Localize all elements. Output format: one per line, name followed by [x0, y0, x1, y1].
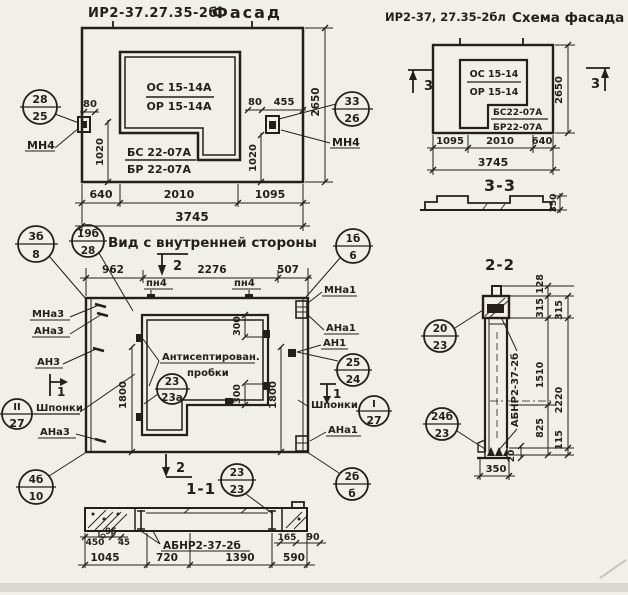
hatch-dot	[298, 518, 301, 521]
inner-dim-1800-left: 1800	[118, 381, 129, 409]
label-an3: АН3	[37, 357, 60, 368]
facade-dim-80-left: 80	[83, 99, 97, 110]
schema-title-code: ИР2-37, 27.35-2бл	[385, 10, 506, 24]
label-mna3: МНа3	[32, 309, 64, 320]
inner-dim-507: 507	[277, 264, 299, 276]
callout-II-27-num: II	[13, 402, 20, 413]
facade-anchor-plate-right-core	[269, 121, 276, 129]
dim-1390: 1390	[225, 552, 254, 564]
section3-left-arrow	[409, 70, 417, 80]
callout-23-23a-leader	[144, 394, 158, 404]
callout-19b-28-den: 28	[81, 245, 96, 257]
facade-dim-1020-right: 1020	[248, 144, 259, 172]
drawing-sheet: ИР2-37.27.35-2б Фасад ОС 15-14А ОР 15-14…	[0, 0, 628, 595]
facade-dim-2650: 2650	[310, 87, 322, 116]
schema-dim-2650: 2650	[554, 76, 565, 104]
inner-vert-dim-lines	[132, 315, 281, 452]
section-2-2: 2-2 АБНР2-37-2б 20 23 24б 23 128 315 315…	[421, 256, 574, 480]
facade-callout-left-num: 28	[32, 93, 47, 106]
facade-callout-right-num: 33	[344, 95, 359, 108]
dim-1510: 1510	[535, 361, 546, 388]
callout-19b-28-leader	[99, 253, 133, 311]
callout-I-27-den: 27	[366, 414, 381, 427]
callout-2b-b-den: б	[348, 488, 355, 500]
dim-450: 450	[86, 538, 105, 548]
callout-1b-6-num: 1б	[346, 233, 361, 245]
callout-II-27-den: 27	[9, 417, 24, 430]
section-3-3: 3-3 350	[420, 176, 567, 213]
section-1-1: АБНР2-37-2б 450 95 45 165 90 1045 720 13…	[78, 502, 326, 568]
label-an1: АН1	[323, 338, 346, 349]
section-3-3-dim-350: 350	[549, 194, 559, 213]
schema-dim-3745: 3745	[478, 156, 509, 169]
schema-dim-2010: 2010	[486, 136, 514, 147]
section1-right-label: 1	[333, 387, 341, 401]
section1-left-label: 1	[57, 385, 65, 399]
section-3-3-profile	[425, 196, 551, 210]
section-1-1-title: 1-1	[186, 480, 216, 498]
dim-1045: 1045	[90, 552, 119, 564]
plug-mark	[263, 330, 270, 338]
section-2-2-title: 2-2	[485, 256, 515, 274]
antiseptic-label-line1: Антисептирован.	[162, 352, 260, 363]
dim-315-b: 315	[554, 300, 565, 320]
facade-anchor-right-label: МН4	[332, 136, 360, 149]
callout-4b-10-den: 10	[29, 491, 44, 503]
dim-20: 20	[507, 450, 517, 463]
callout-23-23-den: 23	[230, 484, 245, 496]
callout-2b-b-num: 2б	[345, 471, 360, 483]
antiseptic-label-line2: пробки	[187, 367, 229, 379]
callout-I-27-num: I	[372, 399, 376, 410]
section-2-2-foot-fill	[487, 447, 507, 456]
inner-view: 3б 8 19б 28 Вид с внутренней стороны 2 9…	[0, 225, 392, 514]
section-2-2-head-core	[487, 304, 504, 313]
inner-section-mark-2-top: 2	[157, 254, 188, 276]
facade-dim-ticks	[79, 25, 328, 229]
facade-anchor-right-leader	[281, 130, 330, 143]
callout-24b-23-num: 24б	[431, 411, 453, 423]
schema-section-mark-3-right: 3	[586, 68, 610, 92]
schema-panel-mark-2: БР22-07А	[493, 123, 542, 133]
callout-3b-8-den: 8	[32, 248, 40, 261]
facade-anchor-left-leader	[55, 128, 79, 148]
facade-dim-640: 640	[90, 188, 113, 201]
section-3-3-hatch	[483, 204, 505, 209]
section-2-2-body-inner-lines	[489, 318, 507, 452]
label-ana3-bottom: АНа3	[40, 427, 70, 438]
facade-dimensions: 80 80 455 1020 1020 2650 640 2010 1095 3…	[75, 25, 333, 231]
callout-23-23a-num: 23	[165, 376, 180, 388]
dim-315-a: 315	[535, 298, 546, 318]
mna3-target-mark	[95, 304, 106, 307]
label-ana1-bottom: АНа1	[328, 425, 358, 436]
callout-4b-10-num: 4б	[29, 474, 44, 486]
pn4-left-label: пн4	[146, 278, 167, 289]
inner-section-mark-2-bottom: 2	[162, 454, 192, 477]
inner-view-title: Вид с внутренней стороны	[108, 235, 317, 251]
dim-2220: 2220	[554, 386, 565, 413]
plug-mark	[136, 413, 143, 421]
construction-drawing: ИР2-37.27.35-2б Фасад ОС 15-14А ОР 15-14…	[0, 0, 628, 595]
facade-window-mark-1: ОС 15-14А	[147, 81, 212, 94]
dim-45: 45	[118, 538, 130, 548]
callout-20-23-num: 20	[433, 323, 448, 335]
facade-dim-3745: 3745	[175, 210, 208, 224]
label-ana1-top: АНа1	[326, 323, 356, 334]
schema-window-mark-2: ОР 15-14	[470, 87, 519, 98]
facade-callout-left-leader	[55, 114, 79, 123]
dim-90: 90	[306, 532, 320, 543]
antiseptic-leaders	[143, 339, 159, 386]
facade-title-code: ИР2-37.27.35-2б	[88, 6, 218, 21]
schema-dim-1095: 1095	[436, 136, 464, 147]
label-shponki-right: Шпонки	[311, 400, 358, 411]
inner-dim-300-bottom: 300	[232, 384, 243, 404]
schema-section-mark-3-left: 3	[408, 70, 433, 94]
callout-19b-28-num: 19б	[77, 228, 99, 240]
callout-23-23a-den: 23а	[161, 392, 183, 404]
section2-bottom-label: 2	[176, 461, 185, 476]
schema-panel-mark-1: БС22-07А	[493, 108, 542, 118]
facade-dim-2010: 2010	[164, 188, 195, 201]
schema-window-mark-1: ОС 15-14	[470, 69, 519, 80]
section3-right-arrow	[601, 68, 609, 78]
section2-top-arrow	[158, 265, 166, 276]
callout-20-23-den: 23	[433, 340, 448, 352]
facade-callout-right-den: 26	[344, 112, 360, 125]
inner-section-mark-1-left: 1	[50, 374, 68, 399]
an3-target-mark	[93, 348, 104, 351]
facade-panel-mark-1: БС 22-07А	[127, 146, 191, 159]
section-1-1-panel-label: АБНР2-37-2б	[163, 540, 241, 552]
callout-24b-23-leader	[457, 431, 485, 449]
facade-view: ИР2-37.27.35-2б Фасад ОС 15-14А ОР 15-14…	[20, 3, 373, 231]
section-1-1-right-hatch	[286, 512, 307, 529]
schema-view: ИР2-37, 27.35-2бл Схема фасада ОС 15-14 …	[385, 10, 624, 213]
schema-title-name: Схема фасада	[512, 10, 624, 26]
hatch-dot	[103, 518, 106, 521]
facade-dim-455: 455	[274, 97, 295, 108]
section2-bottom-arrow	[162, 467, 170, 477]
facade-anchor-left-label: МН4	[27, 139, 55, 152]
dim-825: 825	[535, 418, 546, 438]
label-ana3-top: АНа3	[34, 326, 64, 337]
an1-target-mark	[288, 349, 296, 357]
facade-dim-80-right: 80	[248, 97, 262, 108]
callout-25-24-den: 24	[346, 374, 361, 386]
dim-590: 590	[283, 552, 305, 564]
facade-callout-left-den: 25	[32, 110, 47, 123]
dim-95: 95	[105, 527, 117, 537]
scan-edge-band	[0, 583, 628, 592]
callout-2b-b-leader	[307, 452, 339, 473]
dim-128: 128	[535, 274, 546, 294]
dim-720: 720	[156, 552, 178, 564]
section-1-1-right-tab	[292, 502, 304, 508]
section3-right-label: 3	[591, 77, 600, 92]
section-2-2-body-edges	[485, 318, 507, 452]
section-3-3-title: 3-3	[484, 176, 516, 195]
hatch-dot	[117, 513, 120, 516]
right-edge-connector-top	[296, 301, 307, 318]
pn4-right-label: пн4	[234, 278, 255, 289]
hatch-dot	[92, 513, 95, 516]
callout-4b-10-leader	[49, 453, 85, 476]
plug-mark	[136, 334, 143, 342]
schema-dim-640: 640	[532, 136, 553, 147]
facade-anchor-plate-left-core	[81, 121, 87, 128]
section-1-1-panel-label-leaders	[141, 531, 160, 544]
inner-dim-2276: 2276	[197, 264, 226, 276]
facade-dim-1095: 1095	[255, 188, 286, 201]
section2-top-label: 2	[173, 259, 182, 274]
inner-dim-962: 962	[102, 264, 124, 276]
section-2-2-panel-label: АБНР2-37-2б	[509, 353, 521, 427]
label-shponki-left: Шпонки	[36, 403, 83, 414]
section-2-2-top-tab	[492, 286, 501, 296]
callout-3b-8-num: 3б	[28, 230, 44, 243]
callout-24b-23-den: 23	[435, 428, 450, 440]
inner-dim-300-top: 300	[232, 316, 243, 336]
facade-dim-1020-left: 1020	[95, 138, 106, 166]
callout-23-23-num: 23	[230, 467, 245, 479]
callout-20-23-leader	[455, 310, 483, 328]
label-mna1: МНа1	[324, 285, 356, 296]
right-edge-connector-top-lines	[296, 307, 307, 312]
facade-title-name: Фасад	[212, 3, 282, 22]
dim-165: 165	[278, 533, 297, 543]
ana3-bottom-target-mark	[95, 439, 106, 442]
section3-left-label: 3	[424, 79, 433, 94]
callout-1b-6-den: 6	[349, 250, 356, 262]
dim-115: 115	[554, 430, 565, 450]
facade-window-mark-2: ОР 15-14А	[147, 100, 212, 113]
inner-dim-1800-right: 1800	[268, 381, 279, 409]
dim-350: 350	[486, 464, 507, 475]
facade-panel-mark-2: БР 22-07А	[127, 163, 191, 176]
callout-25-24-num: 25	[346, 357, 361, 369]
scan-scratch	[600, 560, 626, 578]
